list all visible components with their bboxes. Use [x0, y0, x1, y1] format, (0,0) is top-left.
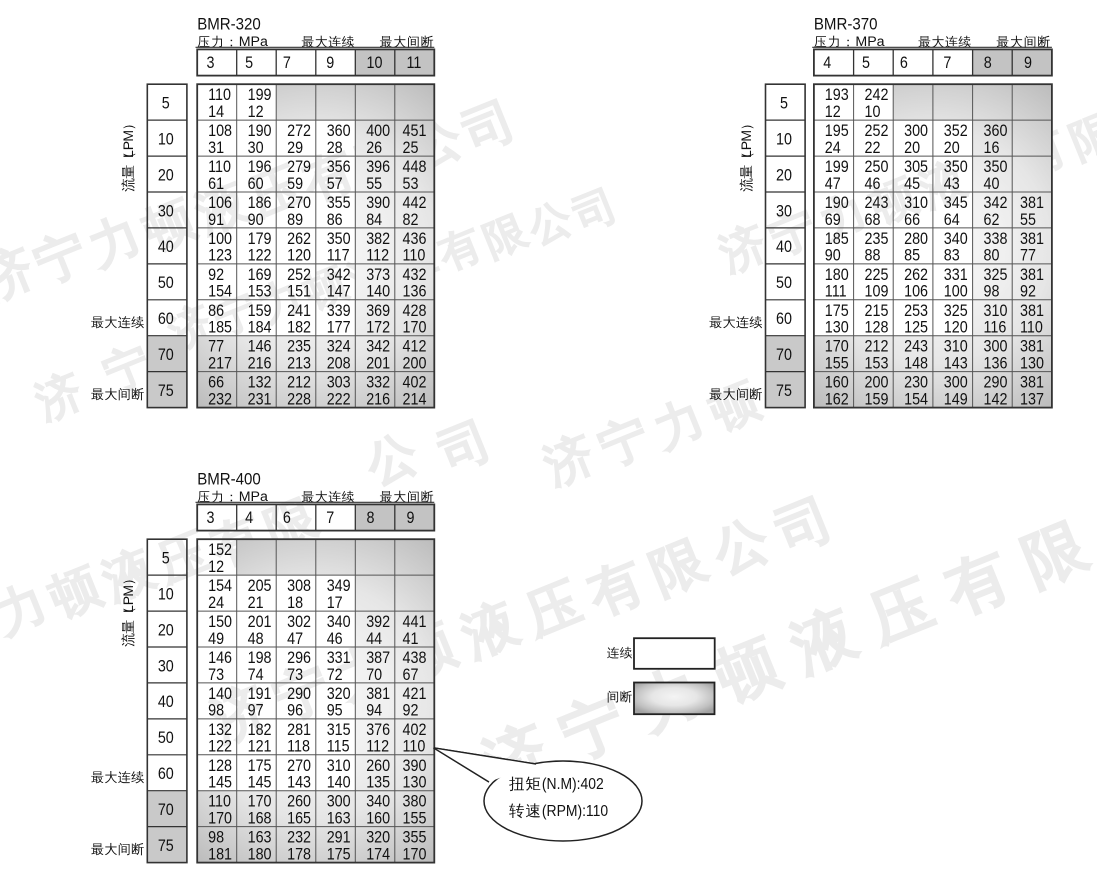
svg-text:175: 175 — [825, 302, 849, 320]
svg-text:60: 60 — [248, 175, 264, 193]
svg-text:96: 96 — [287, 702, 303, 720]
svg-text:4: 4 — [823, 54, 831, 72]
svg-text:64: 64 — [944, 211, 960, 229]
svg-text:130: 130 — [403, 774, 427, 792]
svg-text:8: 8 — [984, 54, 992, 72]
svg-text:179: 179 — [248, 230, 272, 248]
svg-text:376: 376 — [366, 721, 390, 739]
svg-text:45: 45 — [904, 175, 920, 193]
svg-text:116: 116 — [984, 319, 1007, 337]
svg-text:77: 77 — [208, 338, 224, 356]
svg-text:296: 296 — [287, 649, 311, 667]
svg-text:24: 24 — [208, 594, 224, 612]
svg-text:9: 9 — [326, 54, 334, 72]
svg-text:30: 30 — [158, 202, 174, 220]
svg-text:381: 381 — [1020, 302, 1044, 320]
svg-text:148: 148 — [904, 355, 928, 373]
svg-text:30: 30 — [248, 139, 264, 157]
svg-text:69: 69 — [825, 211, 841, 229]
svg-text:24: 24 — [825, 139, 841, 157]
svg-text:62: 62 — [984, 211, 1000, 229]
svg-text:20: 20 — [158, 167, 174, 185]
svg-text:280: 280 — [904, 230, 928, 248]
svg-text:182: 182 — [287, 319, 311, 337]
svg-text:132: 132 — [248, 374, 272, 392]
svg-text:180: 180 — [825, 266, 849, 284]
svg-text:350: 350 — [984, 158, 1008, 176]
svg-text:175: 175 — [248, 757, 272, 775]
svg-text:49: 49 — [208, 630, 224, 648]
svg-text:270: 270 — [287, 194, 311, 212]
svg-text:170: 170 — [248, 793, 272, 811]
svg-text:43: 43 — [944, 175, 960, 193]
svg-text:12: 12 — [248, 103, 264, 121]
svg-text:70: 70 — [366, 666, 382, 684]
svg-text:66: 66 — [904, 211, 920, 229]
svg-text:5: 5 — [862, 54, 870, 72]
svg-text:396: 396 — [366, 158, 390, 176]
svg-text:44: 44 — [366, 630, 382, 648]
svg-text:165: 165 — [287, 810, 311, 828]
svg-text:112: 112 — [366, 247, 389, 265]
svg-text:200: 200 — [865, 374, 889, 392]
svg-text:160: 160 — [366, 810, 390, 828]
svg-text:(RPM):110: (RPM):110 — [542, 802, 608, 820]
svg-text:132: 132 — [208, 721, 232, 739]
svg-text:10: 10 — [158, 586, 174, 604]
svg-text:345: 345 — [944, 194, 968, 212]
svg-text:215: 215 — [865, 302, 889, 320]
svg-text:92: 92 — [1020, 283, 1036, 301]
svg-text:128: 128 — [208, 757, 232, 775]
svg-text:3: 3 — [207, 54, 215, 72]
svg-text:60: 60 — [158, 310, 174, 328]
svg-text:214: 214 — [403, 391, 427, 409]
svg-text:340: 340 — [366, 793, 390, 811]
svg-text:184: 184 — [248, 319, 272, 337]
svg-text:46: 46 — [327, 630, 343, 648]
svg-text:40: 40 — [158, 693, 174, 711]
svg-text:6: 6 — [900, 54, 908, 72]
svg-text:72: 72 — [327, 666, 343, 684]
svg-text:135: 135 — [366, 774, 390, 792]
svg-text:451: 451 — [403, 122, 427, 140]
svg-text:7: 7 — [943, 54, 951, 72]
svg-text:177: 177 — [327, 319, 351, 337]
svg-text:325: 325 — [944, 302, 968, 320]
svg-text:46: 46 — [865, 175, 881, 193]
svg-text:22: 22 — [865, 139, 881, 157]
svg-text:342: 342 — [366, 338, 390, 356]
svg-text:300: 300 — [327, 793, 351, 811]
svg-text:438: 438 — [403, 649, 427, 667]
svg-text:20: 20 — [944, 139, 960, 157]
svg-text:199: 199 — [825, 158, 849, 176]
svg-text:155: 155 — [403, 810, 427, 828]
svg-text:320: 320 — [366, 829, 390, 847]
svg-text:262: 262 — [904, 266, 928, 284]
svg-text:402: 402 — [403, 721, 427, 739]
svg-text:8: 8 — [367, 509, 375, 527]
svg-text:90: 90 — [248, 211, 264, 229]
svg-text:100: 100 — [208, 230, 232, 248]
svg-text:170: 170 — [403, 319, 427, 337]
svg-text:3: 3 — [207, 509, 215, 527]
svg-text:178: 178 — [287, 846, 311, 864]
svg-text:M: M — [120, 585, 136, 597]
svg-text:110: 110 — [208, 158, 231, 176]
svg-text:193: 193 — [825, 86, 849, 104]
svg-text:57: 57 — [327, 175, 343, 193]
svg-text:151: 151 — [287, 283, 311, 301]
svg-text:12: 12 — [825, 103, 841, 121]
svg-text:338: 338 — [984, 230, 1008, 248]
svg-text:355: 355 — [403, 829, 427, 847]
svg-text:70: 70 — [158, 346, 174, 364]
svg-text:390: 390 — [403, 757, 427, 775]
svg-text:324: 324 — [327, 338, 351, 356]
svg-text:381: 381 — [1020, 374, 1044, 392]
svg-text:387: 387 — [366, 649, 390, 667]
svg-text:10: 10 — [865, 103, 881, 121]
svg-text:145: 145 — [248, 774, 272, 792]
svg-text:147: 147 — [327, 283, 351, 301]
svg-text:47: 47 — [287, 630, 303, 648]
svg-text:98: 98 — [208, 829, 224, 847]
svg-text:190: 190 — [248, 122, 272, 140]
svg-text:L: L — [738, 150, 754, 158]
svg-text:61: 61 — [208, 175, 224, 193]
svg-text:137: 137 — [1020, 391, 1044, 409]
svg-text:98: 98 — [984, 283, 1000, 301]
svg-text:74: 74 — [248, 666, 264, 684]
svg-text:230: 230 — [904, 374, 928, 392]
svg-text:182: 182 — [248, 721, 272, 739]
svg-text:53: 53 — [403, 175, 419, 193]
svg-text:7: 7 — [283, 54, 291, 72]
svg-text:142: 142 — [984, 391, 1008, 409]
svg-text:85: 85 — [904, 247, 920, 265]
svg-text:290: 290 — [984, 374, 1008, 392]
svg-text:163: 163 — [327, 810, 351, 828]
svg-text:349: 349 — [327, 577, 351, 595]
svg-text:128: 128 — [865, 319, 889, 337]
svg-text:130: 130 — [1020, 355, 1044, 373]
svg-text:21: 21 — [248, 594, 264, 612]
svg-text:77: 77 — [1020, 247, 1036, 265]
svg-text:50: 50 — [776, 274, 792, 292]
svg-text:9: 9 — [407, 509, 415, 527]
svg-text:155: 155 — [825, 355, 849, 373]
svg-text:6: 6 — [283, 509, 291, 527]
svg-text:100: 100 — [944, 283, 968, 301]
svg-text:84: 84 — [366, 211, 382, 229]
svg-text:216: 216 — [366, 391, 390, 409]
svg-text:143: 143 — [287, 774, 311, 792]
svg-text:BMR-320: BMR-320 — [197, 16, 261, 34]
svg-text:381: 381 — [1020, 266, 1044, 284]
svg-text:392: 392 — [366, 613, 390, 631]
svg-text:136: 136 — [984, 355, 1008, 373]
svg-text:448: 448 — [403, 158, 427, 176]
svg-text:200: 200 — [403, 355, 427, 373]
svg-text:305: 305 — [904, 158, 928, 176]
svg-text:7: 7 — [326, 509, 334, 527]
svg-text:25: 25 — [403, 139, 419, 157]
svg-text:340: 340 — [327, 613, 351, 631]
svg-text:(N.M):402: (N.M):402 — [542, 775, 604, 793]
svg-text:441: 441 — [403, 613, 427, 631]
svg-text:412: 412 — [403, 338, 427, 356]
svg-text:12: 12 — [208, 558, 224, 576]
svg-text:98: 98 — [208, 702, 224, 720]
svg-text:40: 40 — [158, 238, 174, 256]
svg-text:380: 380 — [403, 793, 427, 811]
svg-text:290: 290 — [287, 685, 311, 703]
svg-text:169: 169 — [248, 266, 272, 284]
svg-text:241: 241 — [287, 302, 311, 320]
svg-text:97: 97 — [248, 702, 264, 720]
svg-text:381: 381 — [366, 685, 390, 703]
svg-text:356: 356 — [327, 158, 351, 176]
svg-text:342: 342 — [984, 194, 1008, 212]
svg-text:80: 80 — [984, 247, 1000, 265]
svg-text:10: 10 — [158, 131, 174, 149]
svg-text:205: 205 — [248, 577, 272, 595]
svg-text:300: 300 — [984, 338, 1008, 356]
svg-text:88: 88 — [865, 247, 881, 265]
svg-text:M: M — [120, 130, 136, 142]
svg-text:140: 140 — [327, 774, 351, 792]
svg-text:94: 94 — [366, 702, 382, 720]
svg-text:163: 163 — [248, 829, 272, 847]
svg-text:110: 110 — [403, 247, 426, 265]
svg-text:436: 436 — [403, 230, 427, 248]
svg-text:421: 421 — [403, 685, 427, 703]
svg-text:185: 185 — [208, 319, 232, 337]
svg-text:50: 50 — [158, 729, 174, 747]
svg-text:31: 31 — [208, 139, 224, 157]
svg-text:40: 40 — [984, 175, 1000, 193]
svg-text:154: 154 — [208, 283, 232, 301]
svg-text:175: 175 — [327, 846, 351, 864]
svg-text:9: 9 — [1024, 54, 1032, 72]
svg-text:70: 70 — [776, 346, 792, 364]
svg-text:350: 350 — [944, 158, 968, 176]
svg-text:196: 196 — [248, 158, 272, 176]
svg-text:159: 159 — [248, 302, 272, 320]
svg-text:331: 331 — [944, 266, 968, 284]
svg-text:118: 118 — [287, 738, 310, 756]
svg-text:270: 270 — [287, 757, 311, 775]
svg-text:140: 140 — [366, 283, 390, 301]
svg-text:308: 308 — [287, 577, 311, 595]
svg-text:150: 150 — [208, 613, 232, 631]
svg-text:225: 225 — [865, 266, 889, 284]
svg-text:110: 110 — [1020, 319, 1043, 337]
svg-text:180: 180 — [248, 846, 272, 864]
svg-text:350: 350 — [327, 230, 351, 248]
svg-text:201: 201 — [366, 355, 390, 373]
svg-text:47: 47 — [825, 175, 841, 193]
svg-text:5: 5 — [780, 95, 788, 113]
svg-text:252: 252 — [287, 266, 311, 284]
svg-text:162: 162 — [825, 391, 849, 409]
svg-text:4: 4 — [245, 509, 253, 527]
svg-text:122: 122 — [248, 247, 272, 265]
svg-text:140: 140 — [208, 685, 232, 703]
svg-text:26: 26 — [366, 139, 382, 157]
svg-text:5: 5 — [245, 54, 253, 72]
svg-text:109: 109 — [865, 283, 889, 301]
svg-text:428: 428 — [403, 302, 427, 320]
svg-text:146: 146 — [248, 338, 272, 356]
svg-text:208: 208 — [327, 355, 351, 373]
svg-text:174: 174 — [366, 846, 390, 864]
svg-text:59: 59 — [287, 175, 303, 193]
svg-text:106: 106 — [904, 283, 928, 301]
svg-text:381: 381 — [1020, 230, 1044, 248]
svg-text:381: 381 — [1020, 338, 1044, 356]
svg-text:159: 159 — [865, 391, 889, 409]
svg-text:20: 20 — [904, 139, 920, 157]
svg-text:110: 110 — [403, 738, 426, 756]
svg-text:123: 123 — [208, 247, 232, 265]
svg-text:143: 143 — [944, 355, 968, 373]
svg-text:20: 20 — [158, 622, 174, 640]
svg-text:213: 213 — [287, 355, 311, 373]
svg-text:108: 108 — [208, 122, 232, 140]
svg-text:181: 181 — [208, 846, 232, 864]
svg-text:20: 20 — [776, 167, 792, 185]
svg-text:212: 212 — [865, 338, 889, 356]
svg-text:300: 300 — [904, 122, 928, 140]
svg-text:228: 228 — [287, 391, 311, 409]
svg-text:75: 75 — [158, 382, 174, 400]
svg-text:170: 170 — [825, 338, 849, 356]
svg-text:75: 75 — [776, 382, 792, 400]
svg-text:146: 146 — [208, 649, 232, 667]
svg-text:18: 18 — [287, 594, 303, 612]
svg-text:217: 217 — [208, 355, 232, 373]
svg-text:5: 5 — [162, 95, 170, 113]
svg-text:153: 153 — [248, 283, 272, 301]
svg-text:199: 199 — [248, 86, 272, 104]
svg-text:BMR-370: BMR-370 — [814, 16, 878, 34]
svg-text:90: 90 — [825, 247, 841, 265]
svg-text:243: 243 — [904, 338, 928, 356]
svg-text:149: 149 — [944, 391, 968, 409]
svg-text:110: 110 — [208, 793, 231, 811]
svg-text:281: 281 — [287, 721, 311, 739]
svg-text:400: 400 — [366, 122, 390, 140]
svg-text:115: 115 — [327, 738, 350, 756]
svg-text:170: 170 — [403, 846, 427, 864]
svg-text:172: 172 — [366, 319, 390, 337]
svg-text:195: 195 — [825, 122, 849, 140]
svg-text:112: 112 — [366, 738, 389, 756]
svg-text:201: 201 — [248, 613, 272, 631]
svg-text:360: 360 — [984, 122, 1008, 140]
svg-text:5: 5 — [162, 550, 170, 568]
svg-text:91: 91 — [208, 211, 224, 229]
svg-text:120: 120 — [944, 319, 968, 337]
svg-text:95: 95 — [327, 702, 343, 720]
svg-text:232: 232 — [287, 829, 311, 847]
svg-text:325: 325 — [984, 266, 1008, 284]
svg-text:279: 279 — [287, 158, 311, 176]
svg-text:402: 402 — [403, 374, 427, 392]
svg-text:252: 252 — [865, 122, 889, 140]
svg-text:262: 262 — [287, 230, 311, 248]
svg-text:28: 28 — [327, 139, 343, 157]
svg-text:170: 170 — [208, 810, 232, 828]
svg-text:168: 168 — [248, 810, 272, 828]
svg-text:340: 340 — [944, 230, 968, 248]
svg-text:BMR-400: BMR-400 — [197, 471, 261, 489]
svg-text:320: 320 — [327, 685, 351, 703]
svg-text:70: 70 — [158, 801, 174, 819]
svg-text:250: 250 — [865, 158, 889, 176]
svg-text:86: 86 — [327, 211, 343, 229]
svg-text:154: 154 — [208, 577, 232, 595]
svg-text:310: 310 — [327, 757, 351, 775]
svg-text:68: 68 — [865, 211, 881, 229]
svg-text:272: 272 — [287, 122, 311, 140]
svg-text:191: 191 — [248, 685, 272, 703]
svg-text:235: 235 — [865, 230, 889, 248]
svg-text:55: 55 — [1020, 211, 1036, 229]
svg-text:369: 369 — [366, 302, 390, 320]
svg-text:232: 232 — [208, 391, 232, 409]
svg-text:92: 92 — [403, 702, 419, 720]
svg-text:89: 89 — [287, 211, 303, 229]
svg-text:40: 40 — [776, 238, 792, 256]
svg-text:260: 260 — [287, 793, 311, 811]
svg-text:50: 50 — [158, 274, 174, 292]
svg-text:55: 55 — [366, 175, 382, 193]
svg-text:60: 60 — [776, 310, 792, 328]
svg-text:92: 92 — [208, 266, 224, 284]
svg-text:310: 310 — [944, 338, 968, 356]
svg-text:212: 212 — [287, 374, 311, 392]
svg-text:120: 120 — [287, 247, 311, 265]
svg-text:122: 122 — [208, 738, 232, 756]
svg-text:L: L — [120, 605, 136, 613]
svg-text:30: 30 — [158, 657, 174, 675]
svg-text:145: 145 — [208, 774, 232, 792]
svg-text:198: 198 — [248, 649, 272, 667]
svg-text:60: 60 — [158, 765, 174, 783]
svg-text:11: 11 — [407, 54, 422, 72]
svg-text:16: 16 — [984, 139, 1000, 157]
svg-text:30: 30 — [776, 202, 792, 220]
svg-text:136: 136 — [403, 283, 427, 301]
svg-text:48: 48 — [248, 630, 264, 648]
svg-text:153: 153 — [865, 355, 889, 373]
svg-text:185: 185 — [825, 230, 849, 248]
svg-text:442: 442 — [403, 194, 427, 212]
svg-text:160: 160 — [825, 374, 849, 392]
svg-text:82: 82 — [403, 211, 419, 229]
svg-text:390: 390 — [366, 194, 390, 212]
svg-text:154: 154 — [904, 391, 928, 409]
svg-text:66: 66 — [208, 374, 224, 392]
svg-text:14: 14 — [208, 103, 224, 121]
svg-text:29: 29 — [287, 139, 303, 157]
svg-text:152: 152 — [208, 541, 232, 559]
svg-text:300: 300 — [944, 374, 968, 392]
